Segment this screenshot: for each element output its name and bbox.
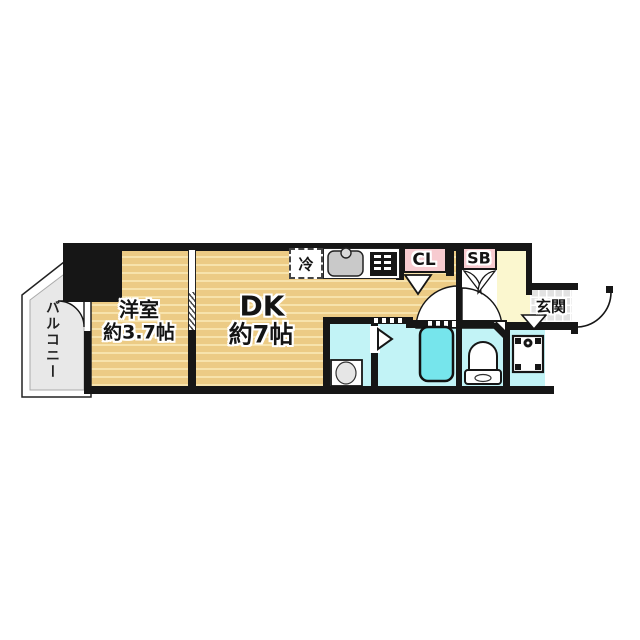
balcony-label: バルコニー: [42, 300, 62, 392]
closet-folding-door: [405, 275, 431, 294]
wall-diagonal: [494, 324, 507, 337]
pan-drain-hole: [527, 342, 530, 345]
entrance-label: 玄関: [536, 296, 566, 317]
entrance-door-hinge: [606, 286, 613, 293]
shoebox-label: SB: [467, 249, 491, 268]
refrigerator-label: 冷: [298, 254, 313, 275]
entrance-step-mark: [522, 315, 546, 329]
washbasin-bowl: [336, 362, 356, 384]
closet-label: CL: [412, 250, 435, 270]
entrance-door-swing: [578, 292, 611, 327]
bathroom-door-mark: [378, 329, 392, 349]
faucet: [341, 248, 351, 258]
western-room-area: 約3.7帖: [103, 318, 175, 345]
fixtures-layer: [0, 0, 640, 640]
bathtub: [420, 327, 453, 381]
floor-plan: 洋室 約3.7帖 DK 約7帖 CL SB 冷 玄関 バルコニー: [0, 0, 640, 640]
toilet-bowl: [469, 342, 497, 372]
dk-area: 約7帖: [229, 315, 294, 350]
